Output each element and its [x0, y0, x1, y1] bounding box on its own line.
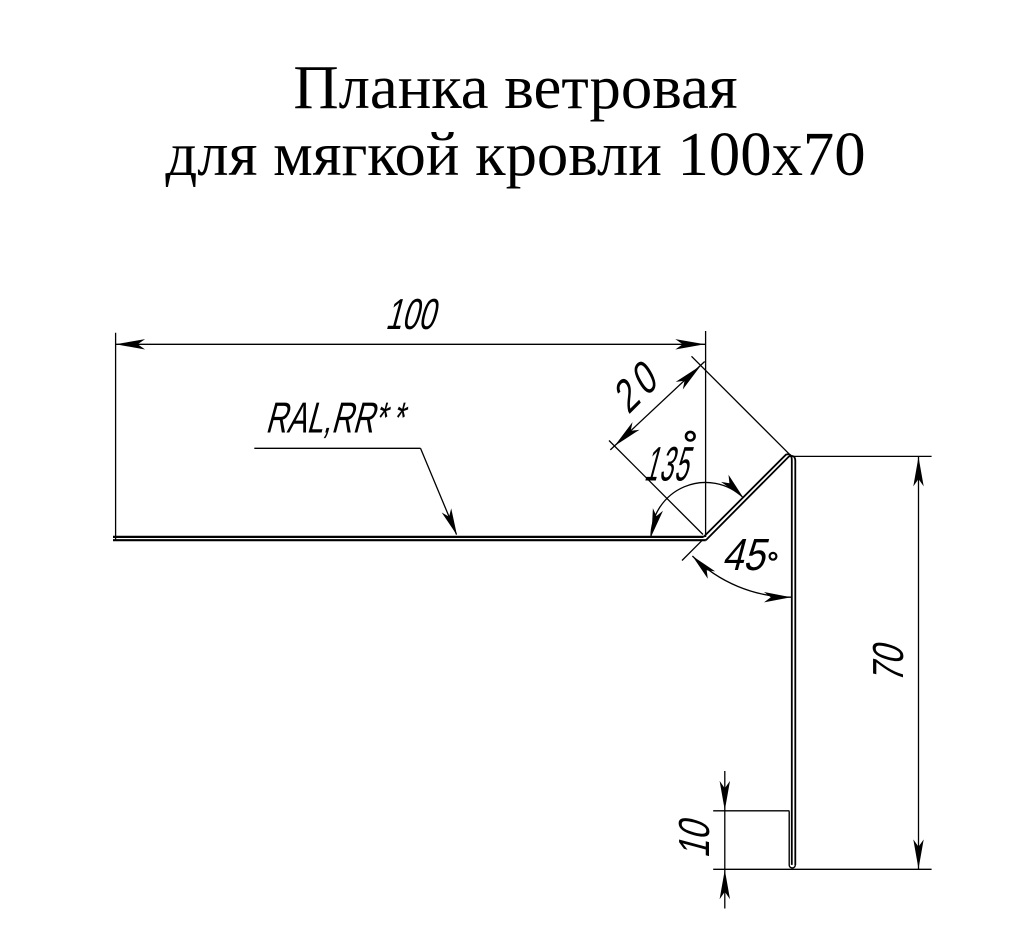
svg-text:20: 20	[608, 345, 668, 424]
svg-text:135: 135	[641, 437, 700, 491]
svg-text:45: 45	[719, 530, 775, 581]
svg-text:10: 10	[670, 812, 719, 861]
svg-text:70: 70	[864, 636, 913, 685]
svg-text:100: 100	[382, 291, 444, 339]
svg-text:RAL,RR* *: RAL,RR* *	[262, 395, 412, 443]
